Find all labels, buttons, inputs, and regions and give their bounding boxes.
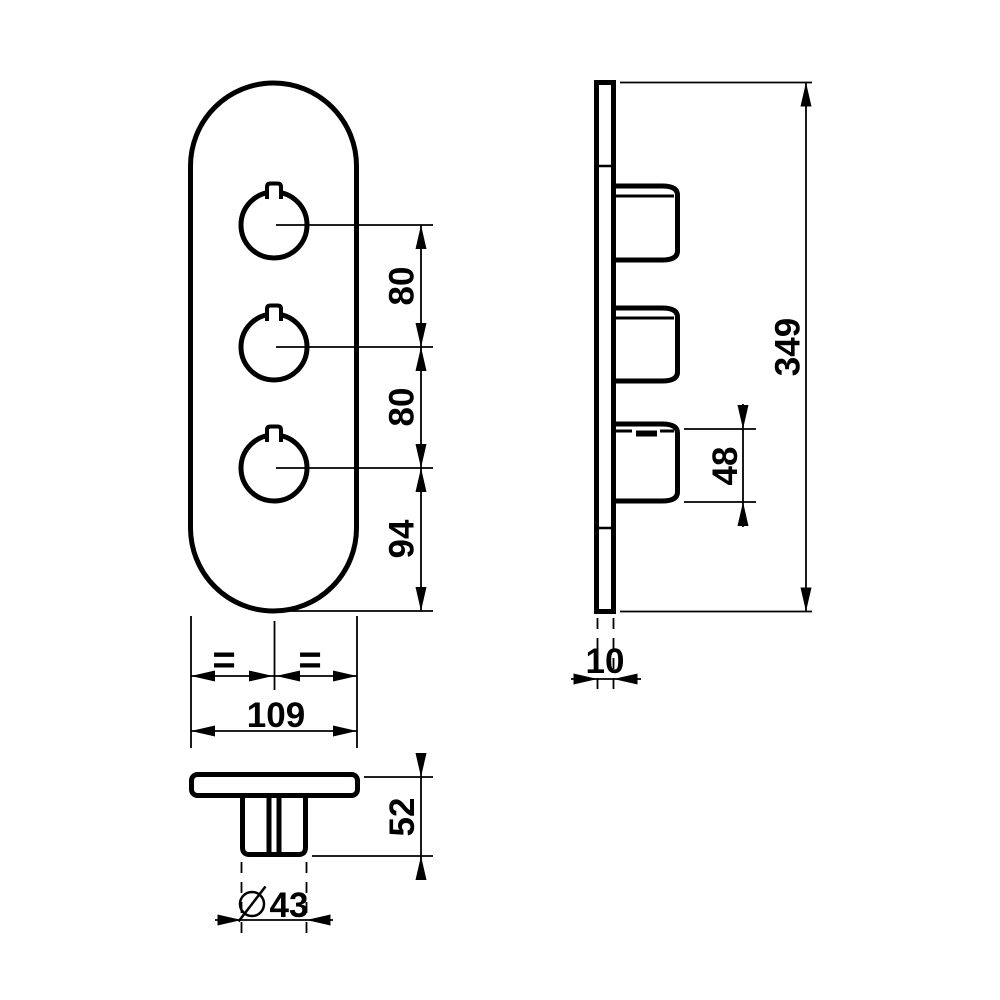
dimension-plate-thickness: 10 xyxy=(571,618,641,697)
arrowhead xyxy=(333,726,357,737)
dimension-knob-diameter: 43 xyxy=(215,862,333,940)
bottom-view: 52 43 xyxy=(192,753,434,940)
arrowhead xyxy=(738,405,749,429)
arrowhead xyxy=(416,225,427,249)
dim-label-349: 349 xyxy=(769,318,808,376)
arrowhead xyxy=(218,915,242,926)
arrowhead xyxy=(416,587,427,611)
technical-drawing-page: 80 80 94 = = 109 xyxy=(0,0,1000,1000)
keyway-mark-middle xyxy=(267,306,281,322)
arrowhead xyxy=(416,856,427,880)
arrowhead xyxy=(249,671,273,682)
arrowhead xyxy=(416,468,427,492)
dim-label-48: 48 xyxy=(706,447,745,486)
diameter-icon xyxy=(239,887,266,922)
plate-edge-outline xyxy=(192,775,358,796)
equal-symbol-left: = xyxy=(212,638,235,682)
arrowhead xyxy=(307,915,331,926)
dim-label-94: 94 xyxy=(383,519,422,558)
dim-label-10: 10 xyxy=(586,642,625,681)
keyway-mark-bottom xyxy=(267,427,281,443)
dimension-knob-size: 48 xyxy=(684,404,756,527)
equal-symbol-right: = xyxy=(298,638,321,682)
dimension-plate-width: 109 xyxy=(191,696,357,737)
dim-label-80-top: 80 xyxy=(383,267,422,306)
dim-label-52: 52 xyxy=(383,798,422,837)
arrowhead xyxy=(416,444,427,468)
dimension-knob-spacing: 80 80 94 xyxy=(383,225,427,611)
side-view: 349 48 10 xyxy=(571,83,812,698)
valve-technical-drawing: 80 80 94 = = 109 xyxy=(0,0,1000,1000)
knob-stem-outline xyxy=(243,795,306,855)
arrowhead xyxy=(801,83,812,107)
arrowhead xyxy=(416,323,427,347)
dim-label-109: 109 xyxy=(247,696,305,735)
dim-label-80-bottom: 80 xyxy=(383,388,422,427)
dim-label-43: 43 xyxy=(270,886,309,925)
plate-profile xyxy=(597,83,614,612)
arrowhead xyxy=(416,753,427,777)
arrowhead xyxy=(276,671,300,682)
front-view: 80 80 94 = = 109 xyxy=(191,83,434,748)
arrowhead xyxy=(416,347,427,371)
arrowhead xyxy=(191,726,215,737)
arrowhead xyxy=(333,671,357,682)
arrowhead xyxy=(801,588,812,612)
arrowhead xyxy=(738,502,749,526)
keyway-mark-top xyxy=(267,184,281,200)
